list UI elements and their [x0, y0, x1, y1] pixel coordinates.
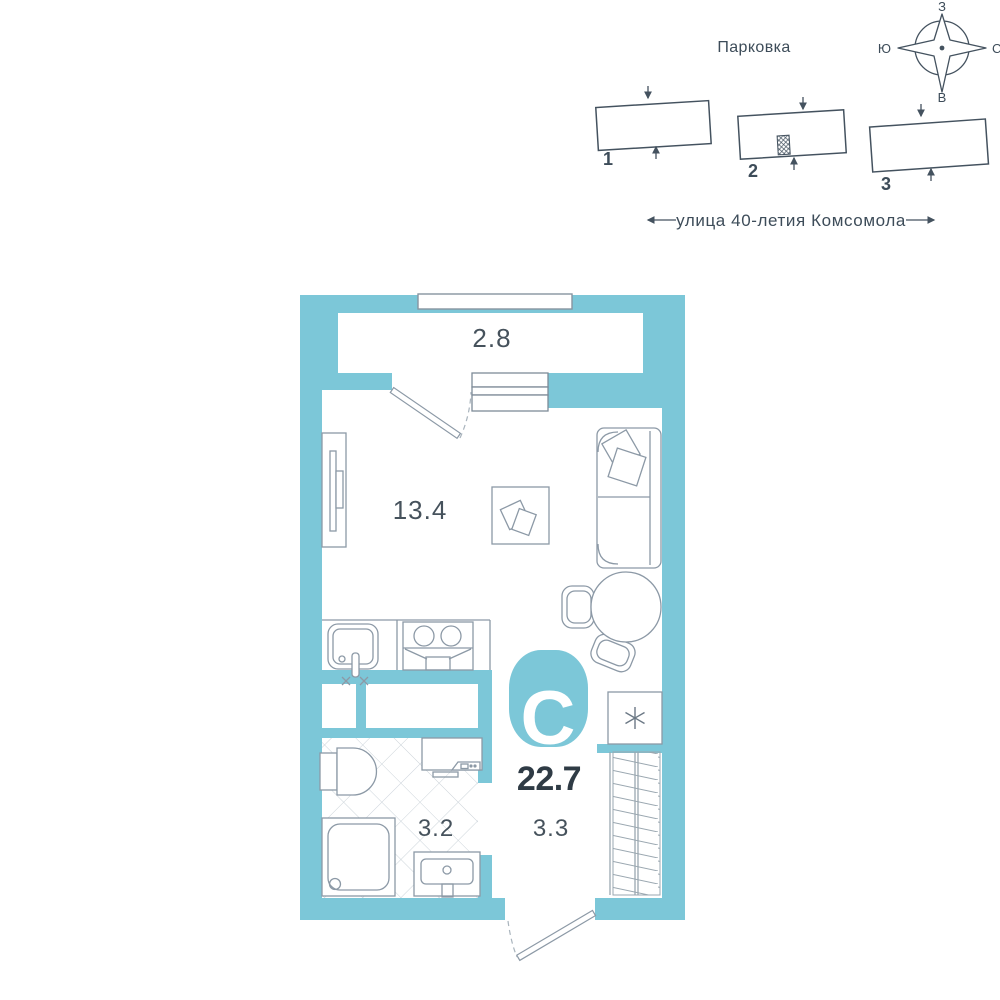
floorplan-page: З Ю С В Парковка 1 2 — [0, 0, 1000, 1000]
site-plan: З Ю С В Парковка 1 2 — [596, 0, 1000, 230]
balcony-window-unit — [472, 373, 548, 411]
apartment-location-marker — [777, 135, 790, 155]
table-top — [591, 572, 661, 642]
compass-south-label: Ю — [878, 41, 891, 56]
studio-badge-letter: С — [521, 676, 576, 761]
room-area-living: 13.4 — [393, 495, 448, 525]
building-2: 2 — [738, 97, 846, 181]
hall-wardrobe — [610, 752, 660, 895]
sofa — [597, 428, 661, 568]
floor-plan: 2.8 13.4 3.2 3.3 С 22.7 — [300, 294, 685, 960]
wardrobe — [322, 433, 346, 547]
room-area-bathroom: 3.2 — [418, 815, 454, 842]
toilet — [320, 748, 376, 795]
room-area-hallway: 3.3 — [533, 815, 569, 842]
building-1-number: 1 — [603, 149, 613, 169]
building-1: 1 — [596, 86, 711, 169]
street-label: улица 40-летия Комсомола — [676, 211, 906, 230]
entrance-door — [508, 910, 596, 960]
balcony-door — [390, 388, 471, 439]
shower — [322, 818, 395, 896]
plan-scene: З Ю С В Парковка 1 2 — [0, 0, 1000, 1000]
cooktop — [403, 622, 473, 670]
compass-west-label: З — [938, 0, 946, 14]
compass-north-label: С — [992, 41, 1000, 56]
compass-icon — [898, 14, 986, 92]
window — [418, 294, 572, 309]
rug — [492, 487, 549, 544]
studio-badge: С — [509, 650, 588, 761]
total-area-label: 22.7 — [517, 760, 581, 798]
building-3: 3 — [870, 104, 989, 194]
room-area-balcony: 2.8 — [472, 323, 511, 353]
building-2-number: 2 — [748, 161, 758, 181]
parking-label: Парковка — [717, 39, 790, 56]
building-3-number: 3 — [881, 174, 891, 194]
street-label-group: улица 40-летия Комсомола — [648, 211, 934, 230]
compass-east-label: В — [938, 90, 947, 105]
fridge — [608, 692, 662, 744]
washbasin — [414, 852, 480, 897]
